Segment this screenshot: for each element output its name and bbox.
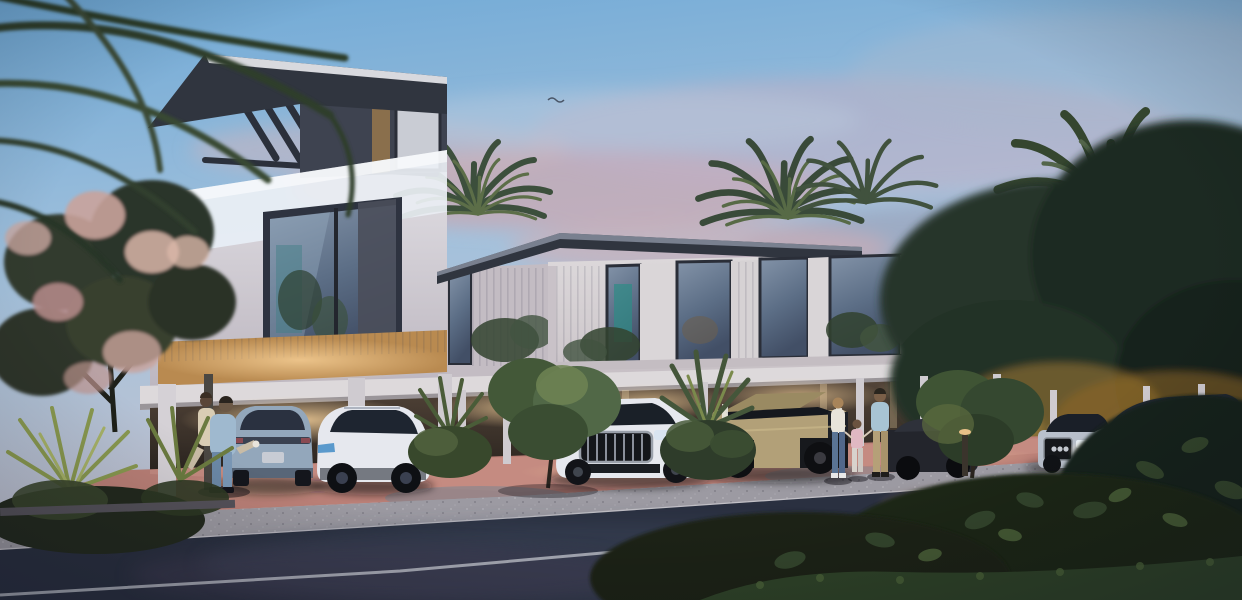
render-scene <box>0 0 1242 600</box>
vignette <box>0 0 1242 600</box>
